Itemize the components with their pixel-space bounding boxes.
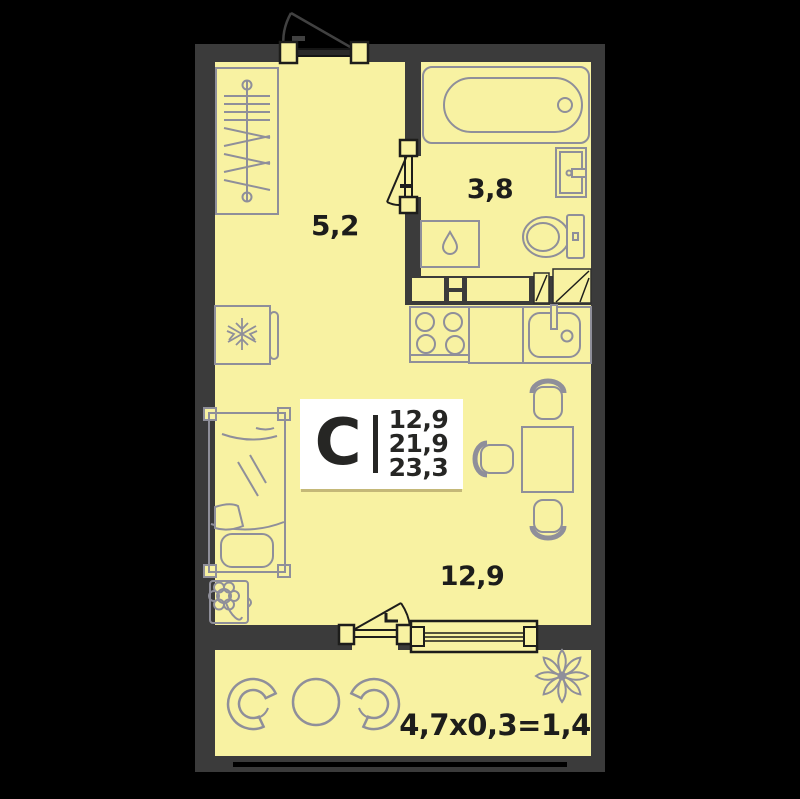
total-area-value: 23,3 bbox=[389, 456, 449, 480]
balcony-railing bbox=[233, 762, 567, 767]
chair bbox=[475, 443, 513, 475]
blanket-fold bbox=[215, 504, 243, 529]
dining-table bbox=[522, 427, 573, 492]
apartment-area-values: 12,9 21,9 23,3 bbox=[389, 408, 449, 480]
door-leaf bbox=[354, 630, 397, 637]
chair bbox=[532, 381, 564, 419]
door-handle bbox=[400, 184, 411, 188]
door-leaf bbox=[297, 49, 351, 56]
hallway-area-label: 5,2 bbox=[303, 209, 367, 242]
door-jamb bbox=[351, 42, 368, 63]
door-jamb bbox=[400, 197, 417, 213]
balcony-area-label: 4,7x0,3=1,4 bbox=[398, 708, 592, 742]
ventilation-shaft bbox=[534, 273, 549, 303]
door-handle bbox=[292, 36, 305, 41]
apartment-info-card: С 12,9 21,9 23,3 bbox=[300, 399, 463, 489]
door-jamb bbox=[280, 42, 297, 63]
window bbox=[411, 621, 537, 652]
living-room-area-label: 12,9 bbox=[430, 561, 514, 592]
balcony-table bbox=[293, 679, 339, 725]
chair bbox=[532, 500, 564, 538]
door-jamb bbox=[400, 140, 417, 156]
floor-plan-screenshot: 5,2 3,8 12,9 4,7x0,3=1,4 С 12,9 21,9 23,… bbox=[0, 0, 800, 799]
entrance-door bbox=[280, 13, 368, 63]
flower-ornament-icon bbox=[536, 650, 588, 702]
ventilation-shaft bbox=[553, 269, 591, 303]
bathroom-area-label: 3,8 bbox=[458, 174, 522, 205]
card-divider bbox=[373, 415, 378, 473]
door-jamb bbox=[339, 625, 354, 644]
apartment-type-letter: С bbox=[315, 411, 362, 475]
